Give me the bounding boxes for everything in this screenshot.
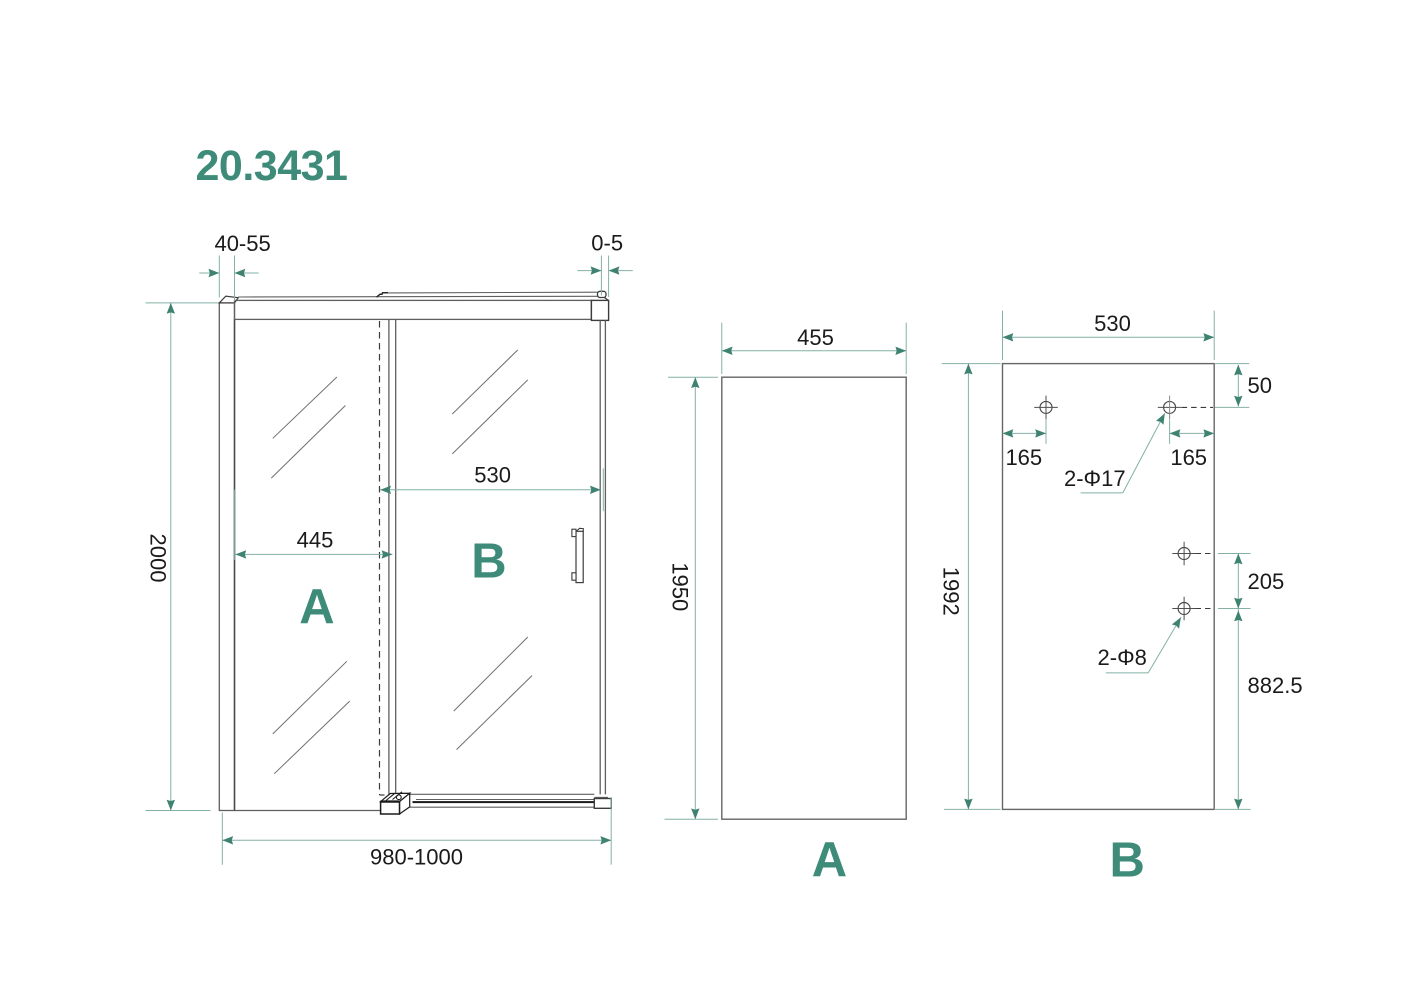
svg-text:165: 165 [1005,445,1042,470]
svg-text:530: 530 [474,462,511,487]
svg-text:20.3431: 20.3431 [196,142,348,190]
svg-text:0-5: 0-5 [591,230,623,255]
svg-text:2-Φ8: 2-Φ8 [1098,645,1147,670]
svg-text:40-55: 40-55 [214,231,270,256]
svg-text:2-Φ17: 2-Φ17 [1064,466,1126,491]
svg-text:50: 50 [1248,373,1272,398]
svg-text:B: B [471,534,506,588]
svg-text:2000: 2000 [145,534,170,583]
svg-text:A: A [299,580,334,634]
svg-text:165: 165 [1170,445,1207,470]
svg-text:205: 205 [1248,569,1285,594]
svg-text:980-1000: 980-1000 [370,845,463,870]
svg-text:455: 455 [797,325,834,350]
svg-text:445: 445 [297,527,334,552]
svg-text:1950: 1950 [667,562,692,611]
svg-text:882.5: 882.5 [1248,673,1303,698]
svg-text:A: A [812,833,847,887]
svg-text:B: B [1110,833,1145,887]
svg-text:1992: 1992 [939,567,964,616]
svg-text:530: 530 [1094,311,1131,336]
